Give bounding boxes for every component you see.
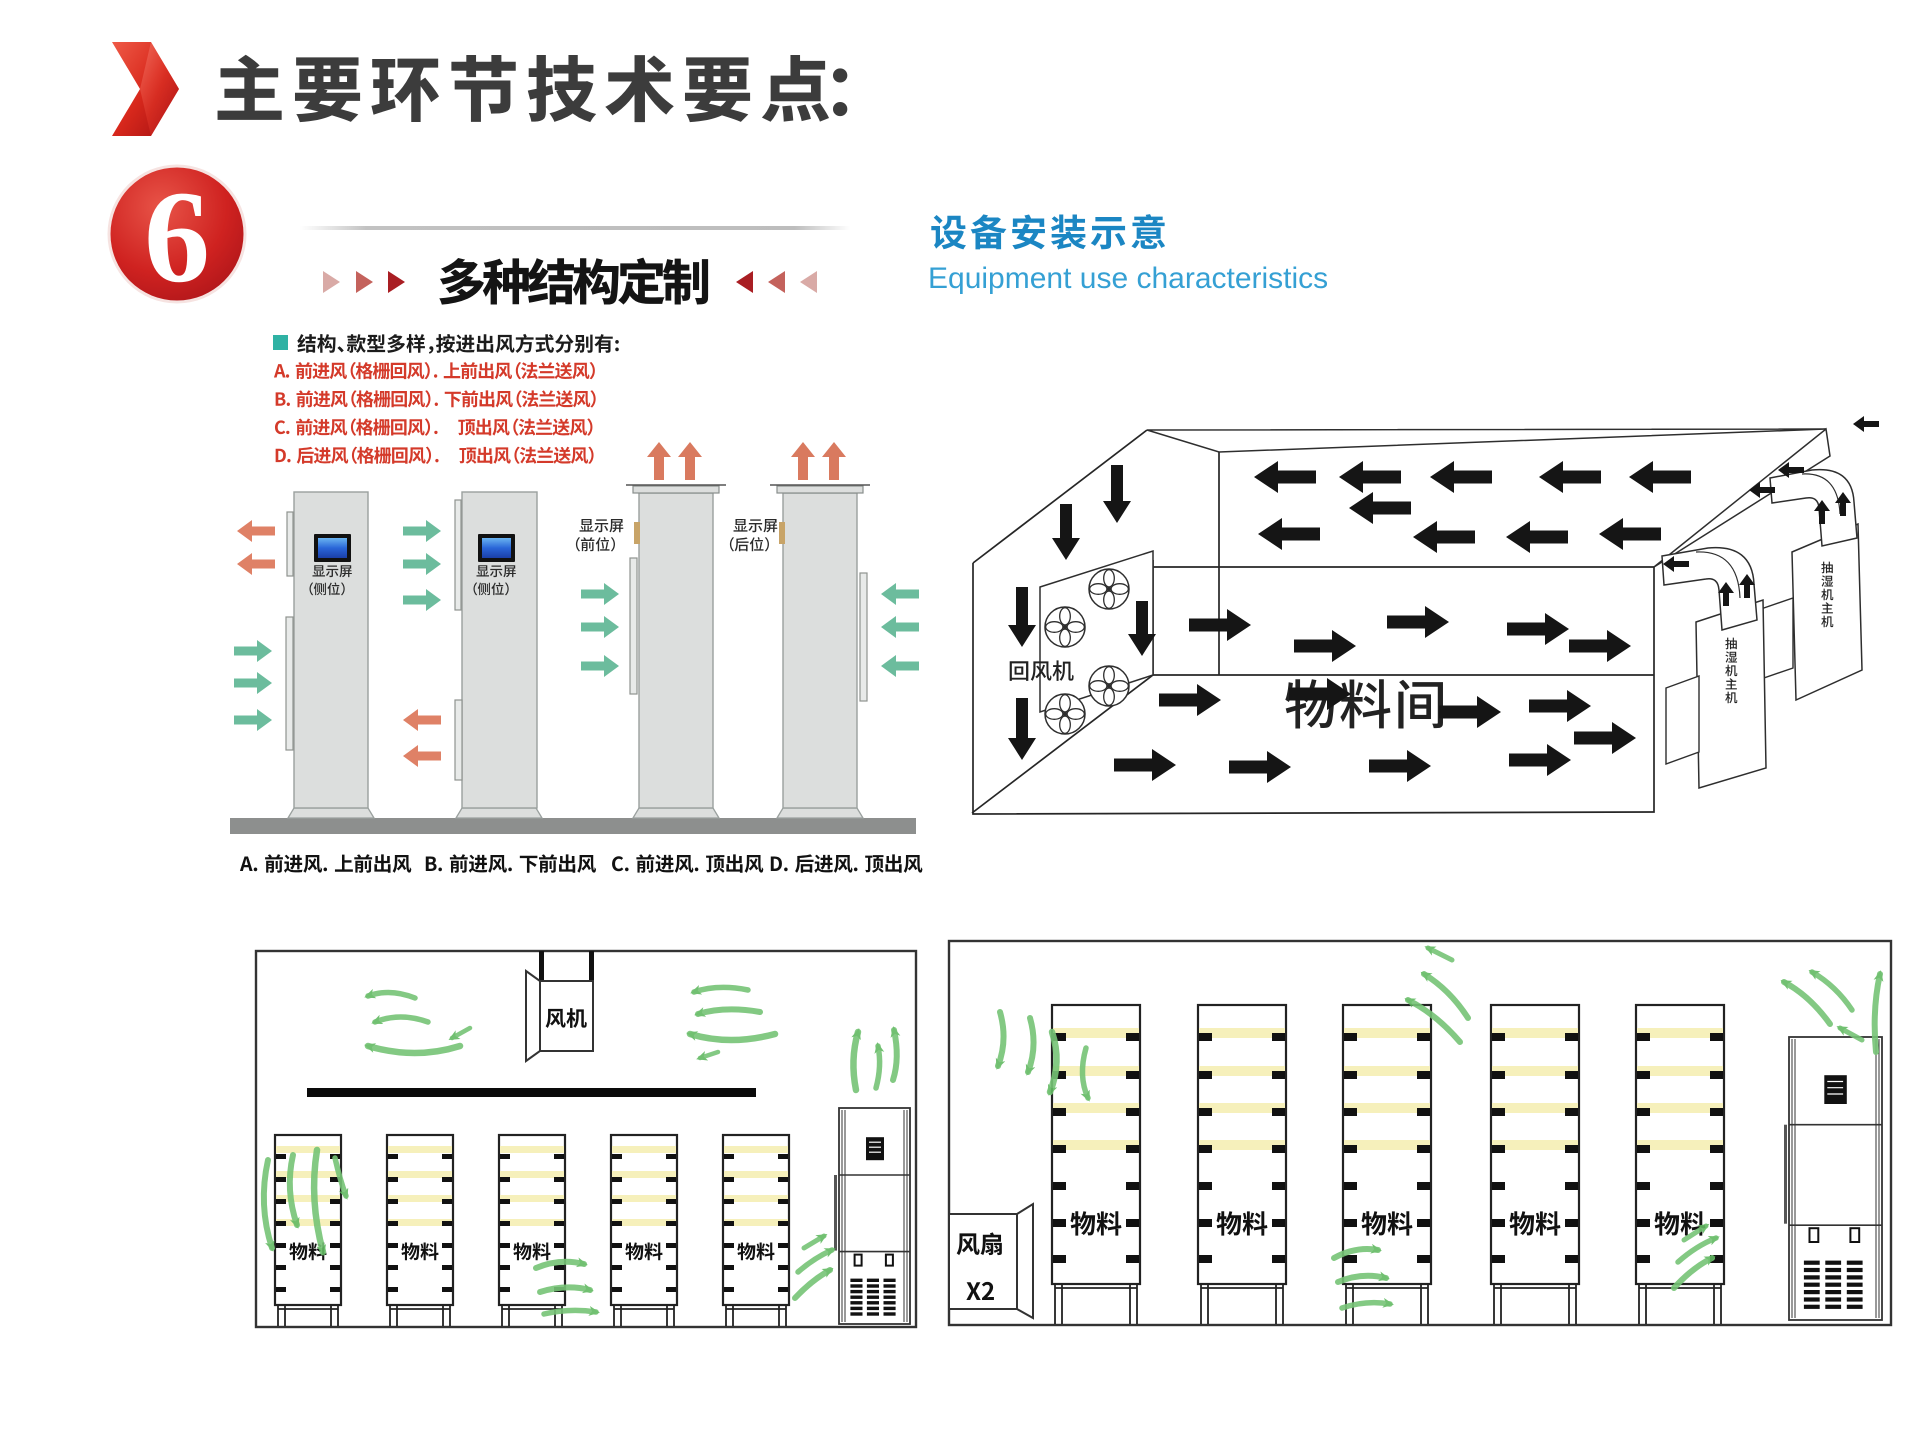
svg-text:Equipment use characteristics: Equipment use characteristics — [928, 262, 1328, 295]
svg-text:6: 6 — [144, 163, 210, 310]
